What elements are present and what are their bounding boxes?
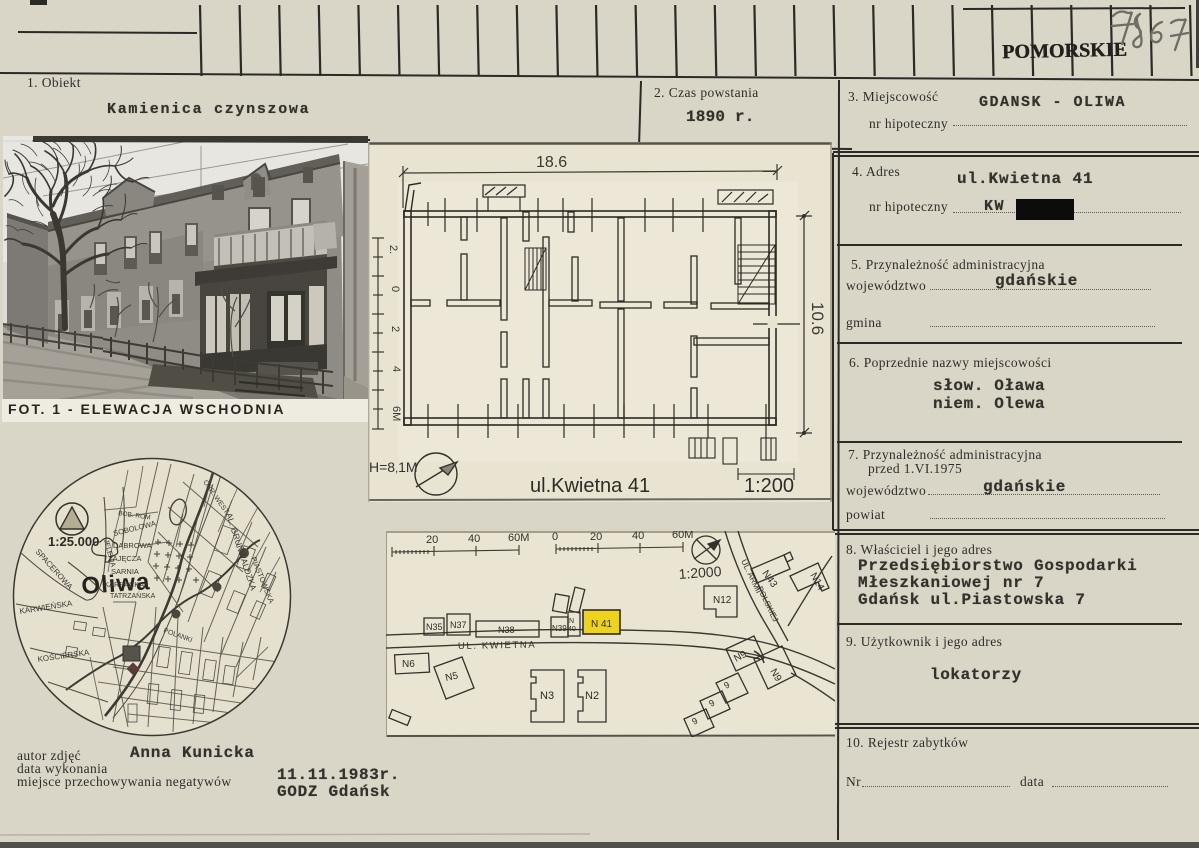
svg-text:N38: N38 bbox=[498, 625, 515, 635]
svg-text:N3: N3 bbox=[540, 690, 554, 702]
svg-text:N: N bbox=[569, 618, 574, 625]
svg-text:2.: 2. bbox=[387, 245, 399, 254]
svg-text:20: 20 bbox=[426, 534, 438, 546]
svg-text:N12: N12 bbox=[713, 595, 732, 606]
svg-text:6M: 6M bbox=[390, 406, 402, 421]
svg-text:SARNIA: SARNIA bbox=[111, 567, 139, 576]
svg-text:60M: 60M bbox=[508, 532, 529, 544]
svg-text:UL. KWIETNA: UL. KWIETNA bbox=[458, 640, 536, 652]
svg-text:60M: 60M bbox=[672, 531, 693, 541]
svg-text:DĄBROWA: DĄBROWA bbox=[113, 541, 151, 550]
svg-text:40: 40 bbox=[568, 626, 576, 633]
svg-text:KARPACKA: KARPACKA bbox=[104, 580, 144, 589]
svg-text:18.6: 18.6 bbox=[536, 154, 567, 171]
svg-text:N39: N39 bbox=[552, 624, 567, 633]
svg-text:N2: N2 bbox=[585, 690, 599, 702]
svg-text:N37: N37 bbox=[450, 620, 467, 630]
svg-text:0: 0 bbox=[552, 531, 558, 543]
svg-text:1:2000: 1:2000 bbox=[678, 563, 722, 582]
svg-text:4: 4 bbox=[390, 366, 402, 372]
svg-text:40: 40 bbox=[468, 533, 480, 545]
svg-text:20: 20 bbox=[590, 531, 602, 543]
svg-text:0: 0 bbox=[389, 286, 401, 292]
svg-text:TATRZAŃSKA: TATRZAŃSKA bbox=[110, 591, 156, 600]
svg-text:N35: N35 bbox=[426, 622, 443, 632]
svg-text:N 41: N 41 bbox=[591, 619, 613, 630]
svg-text:2: 2 bbox=[389, 326, 401, 332]
svg-text:1:200: 1:200 bbox=[744, 475, 794, 497]
svg-text:10.6: 10.6 bbox=[808, 302, 827, 335]
svg-text:N6: N6 bbox=[402, 659, 415, 670]
svg-text:H=8,1M: H=8,1M bbox=[369, 459, 418, 475]
svg-text:40: 40 bbox=[632, 531, 644, 542]
svg-text:ul.Kwietna 41: ul.Kwietna 41 bbox=[530, 475, 650, 497]
